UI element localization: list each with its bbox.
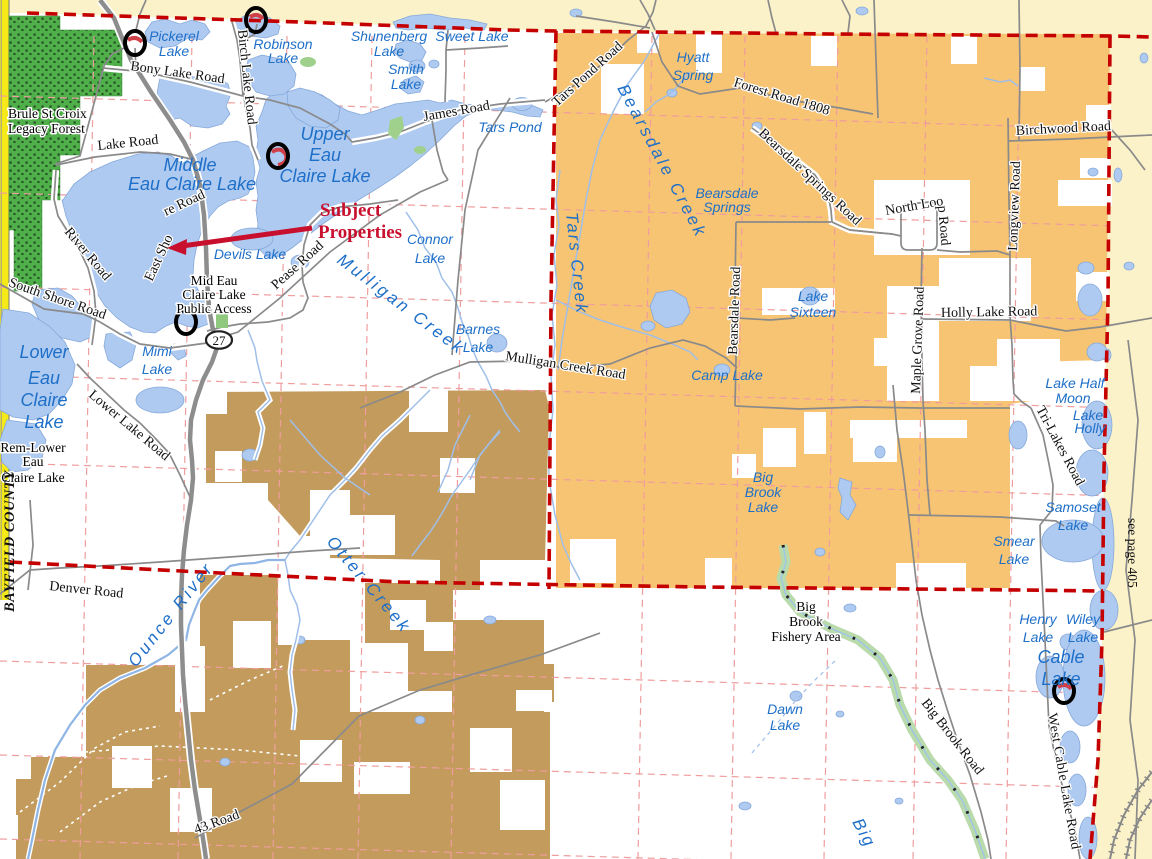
svg-text:Lake: Lake xyxy=(24,412,63,432)
svg-text:Lake: Lake xyxy=(1041,669,1080,689)
svg-text:Tars Pond: Tars Pond xyxy=(478,119,543,135)
svg-text:Longview Road: Longview Road xyxy=(1006,161,1024,251)
svg-text:Bearsdale Road: Bearsdale Road xyxy=(726,266,744,355)
svg-text:Springs: Springs xyxy=(703,199,750,215)
svg-text:Brook: Brook xyxy=(789,614,823,629)
svg-text:Shunenberg: Shunenberg xyxy=(351,28,428,44)
svg-text:Dawn: Dawn xyxy=(767,701,803,717)
svg-text:Lake: Lake xyxy=(748,499,779,515)
svg-text:Eau: Eau xyxy=(28,368,60,388)
svg-text:Eau: Eau xyxy=(309,145,341,165)
svg-text:27: 27 xyxy=(213,333,227,348)
svg-text:Sweet Lake: Sweet Lake xyxy=(435,28,508,44)
svg-text:Henry: Henry xyxy=(1019,611,1057,627)
svg-text:Lake: Lake xyxy=(415,250,446,266)
svg-text:Mid Eau: Mid Eau xyxy=(191,273,238,288)
svg-text:Eau: Eau xyxy=(23,454,44,469)
svg-text:Wiley: Wiley xyxy=(1066,611,1101,627)
svg-text:Rem-Lower: Rem-Lower xyxy=(0,440,66,455)
svg-text:Lake: Lake xyxy=(374,43,405,59)
svg-text:Claire Lake: Claire Lake xyxy=(182,287,245,302)
svg-text:Lake: Lake xyxy=(999,551,1030,567)
svg-text:Lake Half: Lake Half xyxy=(1045,375,1106,391)
svg-text:Barnes: Barnes xyxy=(456,321,500,337)
svg-text:Pickerel: Pickerel xyxy=(149,28,200,44)
svg-text:Legacy Forest: Legacy Forest xyxy=(8,121,85,136)
svg-text:Brule St Croix: Brule St Croix xyxy=(8,106,87,121)
svg-text:Lake: Lake xyxy=(798,288,829,304)
svg-text:BAYFIELD COUNTY: BAYFIELD COUNTY xyxy=(2,470,18,613)
svg-text:Mimi: Mimi xyxy=(142,343,172,359)
svg-text:Smear: Smear xyxy=(993,533,1036,549)
svg-text:Lake: Lake xyxy=(1058,517,1089,533)
svg-text:Lake: Lake xyxy=(159,43,190,59)
svg-text:Smith: Smith xyxy=(388,61,424,77)
svg-text:Big: Big xyxy=(796,599,816,614)
svg-text:Hyatt: Hyatt xyxy=(677,49,711,65)
svg-text:Holly Lake Road: Holly Lake Road xyxy=(941,304,1038,321)
svg-text:Lake: Lake xyxy=(1068,629,1099,645)
svg-text:see page 405: see page 405 xyxy=(1125,518,1140,588)
svg-text:Spring: Spring xyxy=(673,67,714,83)
svg-text:Public Access: Public Access xyxy=(176,301,251,316)
svg-text:Lake: Lake xyxy=(142,361,173,377)
svg-text:Holly: Holly xyxy=(1074,420,1106,436)
svg-text:Camp Lake: Camp Lake xyxy=(691,367,763,383)
svg-text:Samoset: Samoset xyxy=(1045,499,1101,515)
svg-text:Moon: Moon xyxy=(1055,390,1090,406)
svg-text:Lake: Lake xyxy=(770,717,801,733)
svg-text:Lower: Lower xyxy=(19,342,69,362)
svg-text:Upper: Upper xyxy=(300,124,350,144)
svg-text:Big: Big xyxy=(753,469,773,485)
svg-text:Lake: Lake xyxy=(391,76,422,92)
svg-text:Middle: Middle xyxy=(163,155,216,175)
svg-text:Subject: Subject xyxy=(320,200,382,221)
svg-text:Cable: Cable xyxy=(1037,647,1084,667)
svg-text:Claire: Claire xyxy=(20,390,67,410)
svg-text:Claire Lake: Claire Lake xyxy=(279,166,370,186)
svg-text:Properties: Properties xyxy=(318,222,402,243)
svg-text:Devils Lake: Devils Lake xyxy=(214,246,287,262)
svg-text:Fishery Area: Fishery Area xyxy=(771,629,840,644)
svg-text:Connor: Connor xyxy=(407,231,454,247)
svg-text:Sixteen: Sixteen xyxy=(790,304,837,320)
svg-text:Lake: Lake xyxy=(1023,629,1054,645)
svg-text:Lake: Lake xyxy=(268,50,299,66)
svg-text:Brook: Brook xyxy=(745,484,783,500)
